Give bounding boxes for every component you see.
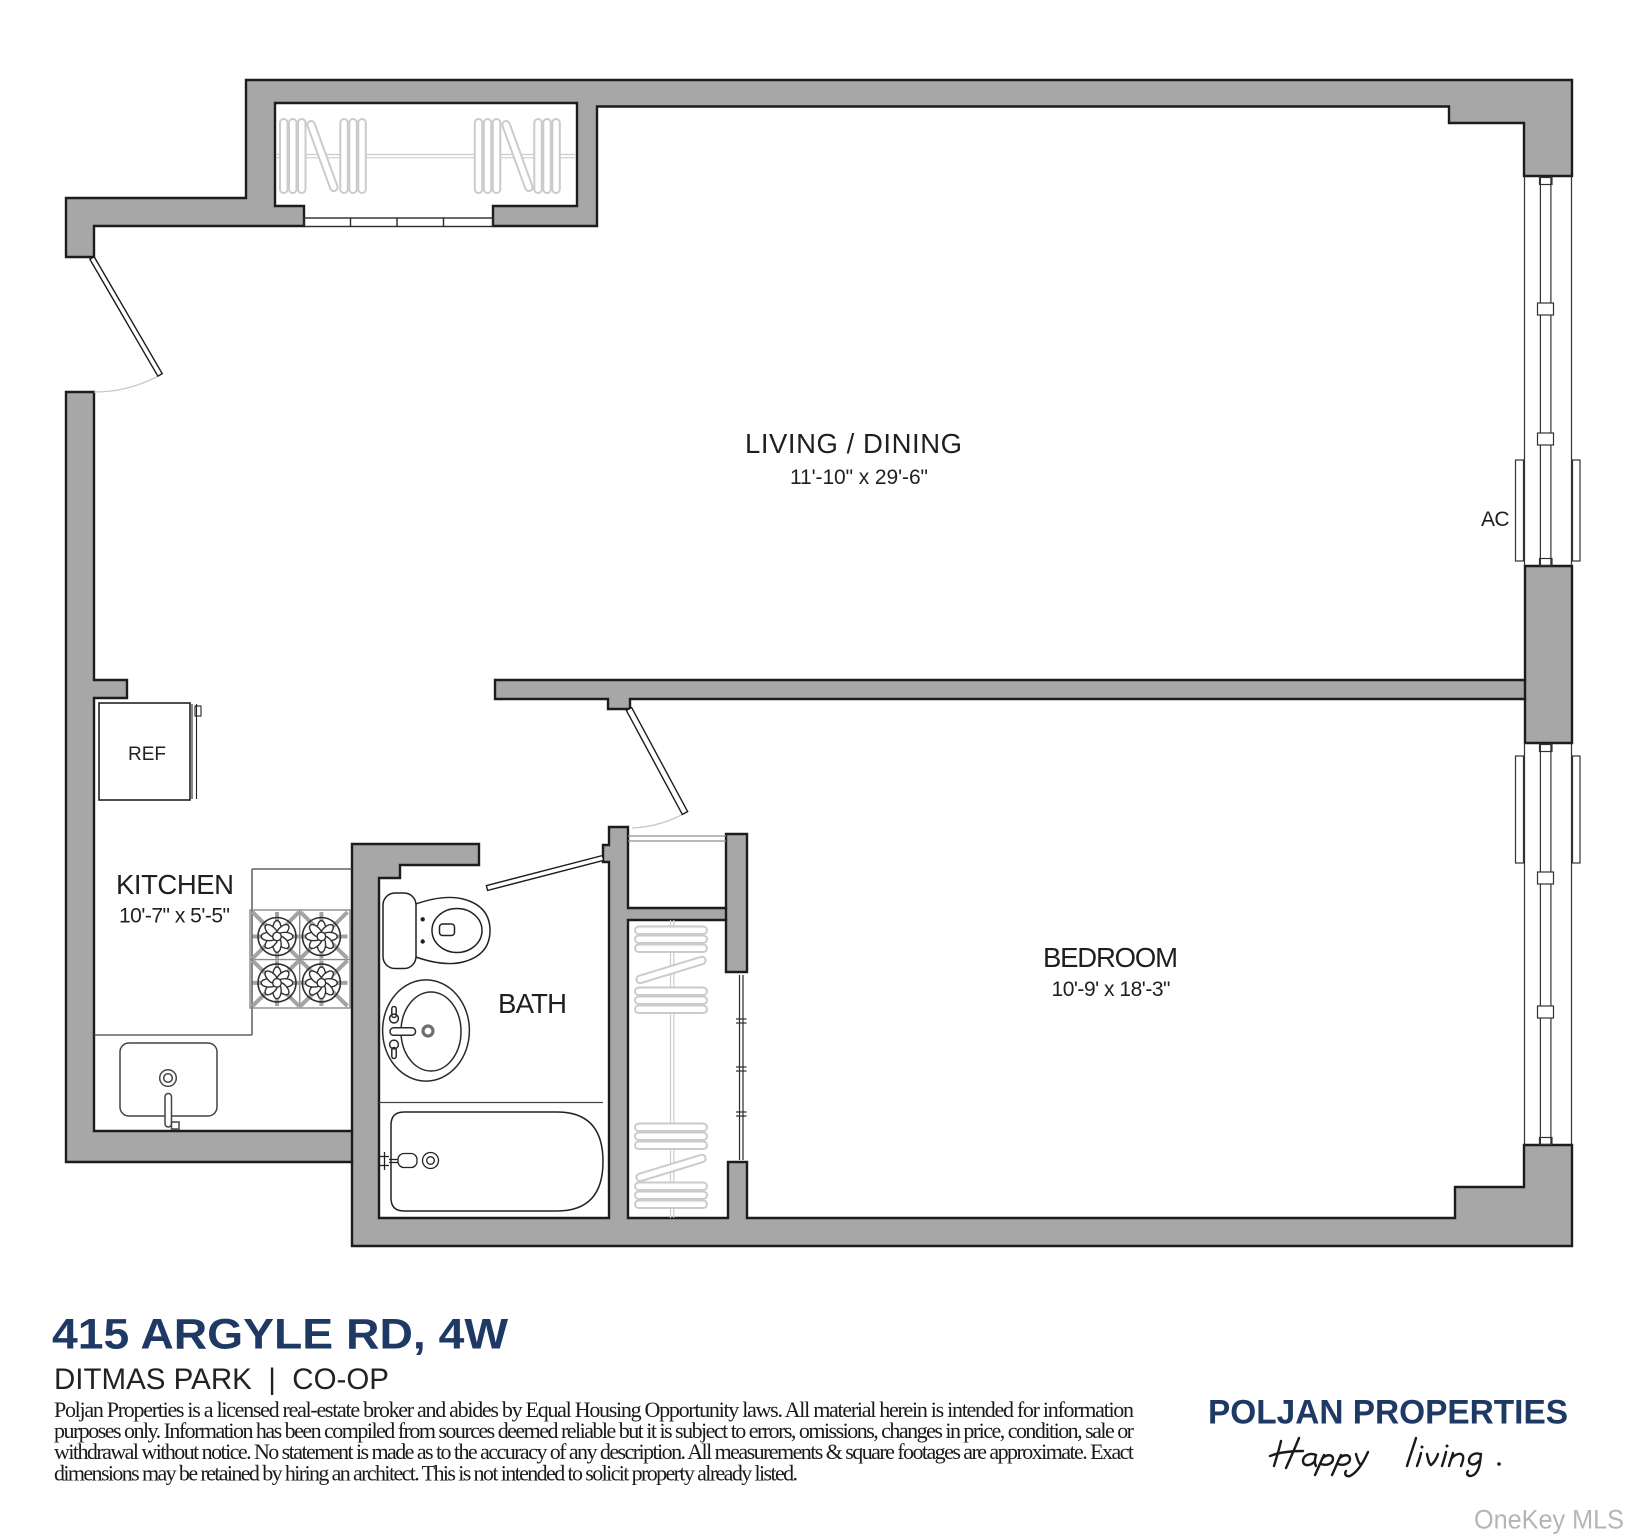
- svg-text:BATH: BATH: [498, 988, 567, 1019]
- svg-text:10'-9' x 18'-3": 10'-9' x 18'-3": [1052, 978, 1171, 1001]
- svg-text:415 ARGYLE RD, 4W: 415 ARGYLE RD, 4W: [52, 1312, 509, 1359]
- svg-text:AC: AC: [1481, 508, 1510, 531]
- svg-text:DITMAS PARK | CO-OP: DITMAS PARK | CO-OP: [54, 1363, 389, 1396]
- svg-text:POLJAN PROPERTIES: POLJAN PROPERTIES: [1208, 1394, 1568, 1432]
- svg-text:dimensions may be retained by: dimensions may be retained by hiring an …: [54, 1460, 798, 1485]
- svg-text:KITCHEN: KITCHEN: [116, 869, 234, 900]
- svg-text:10'-7" x 5'-5": 10'-7" x 5'-5": [119, 905, 230, 928]
- svg-text:11'-10" x 29'-6": 11'-10" x 29'-6": [790, 466, 928, 489]
- svg-text:OneKey MLS: OneKey MLS: [1474, 1505, 1624, 1535]
- svg-text:BEDROOM: BEDROOM: [1043, 942, 1178, 973]
- svg-text:LIVING / DINING: LIVING / DINING: [745, 428, 962, 459]
- svg-text:REF: REF: [128, 744, 166, 765]
